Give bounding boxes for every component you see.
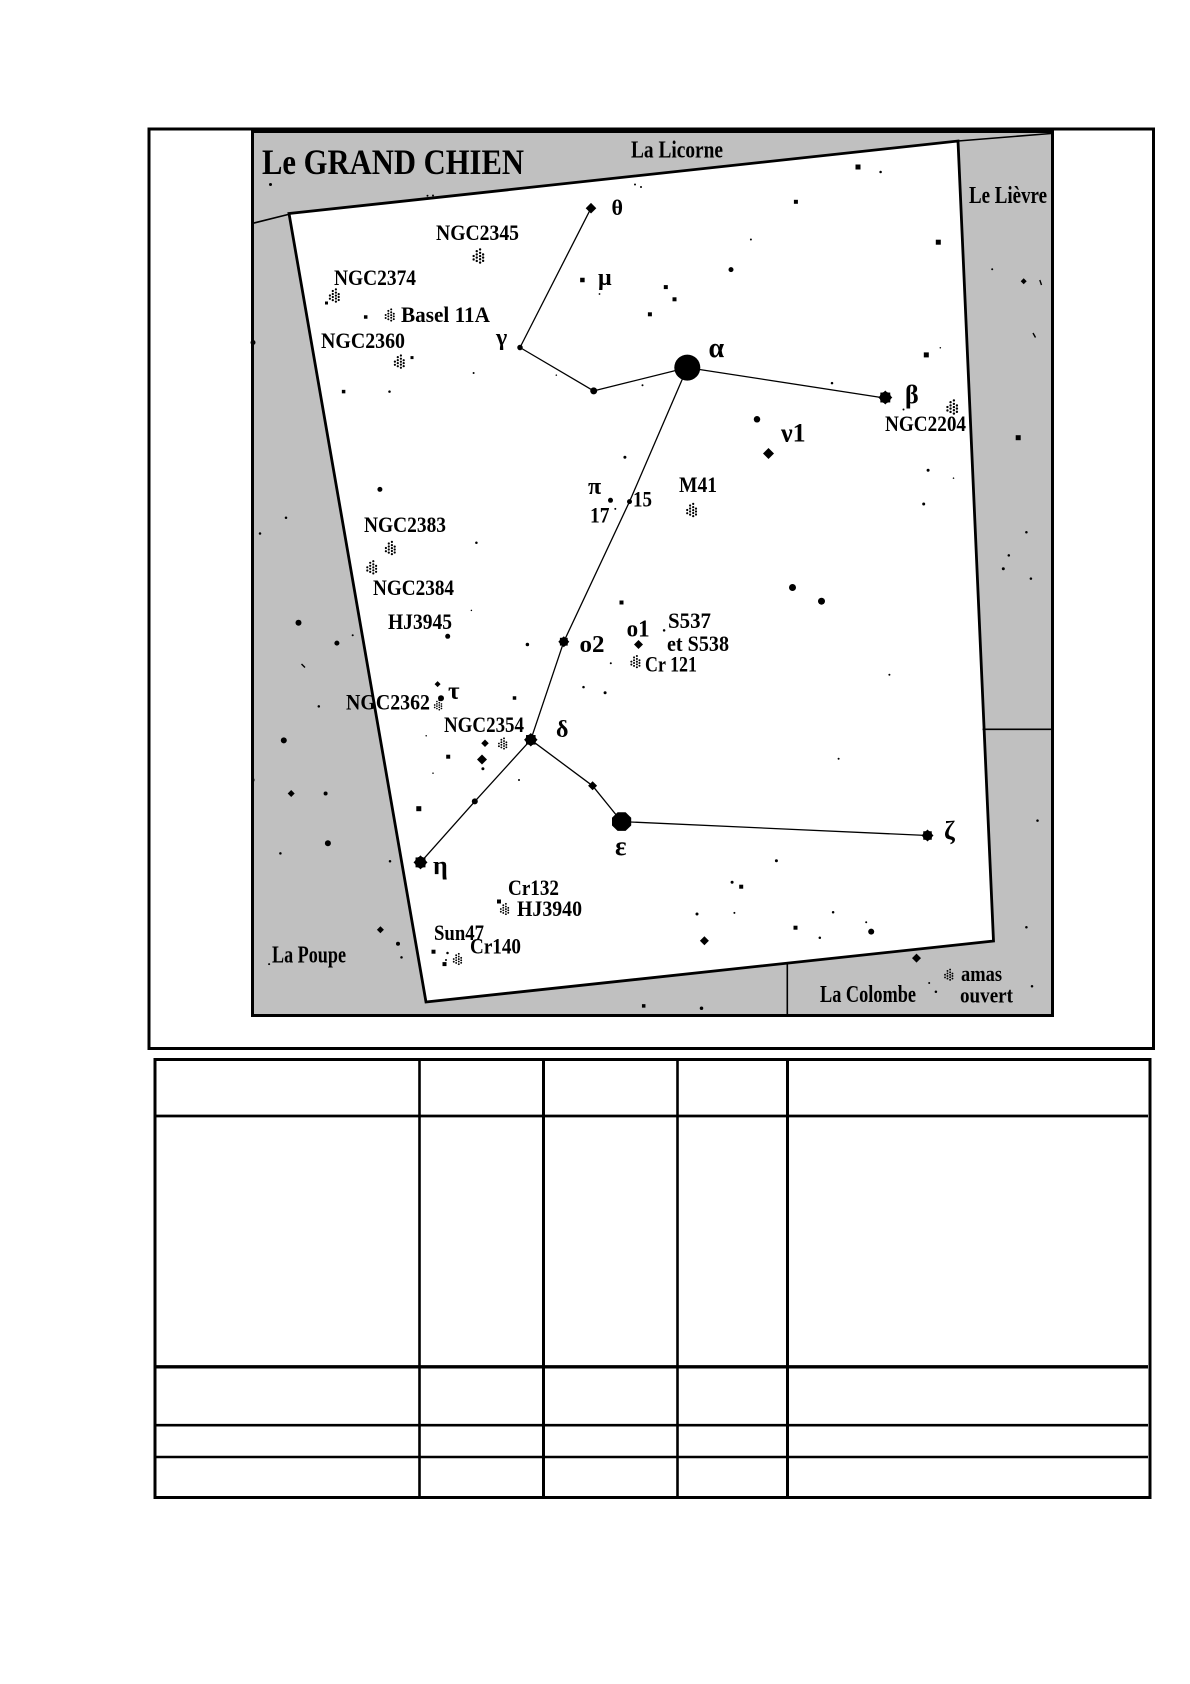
svg-text:La Poupe: La Poupe — [272, 943, 346, 969]
svg-text:τ: τ — [448, 678, 460, 705]
svg-text:ε: ε — [615, 831, 627, 861]
svg-text:Le Lièvre: Le Lièvre — [969, 183, 1047, 209]
svg-text:δ: δ — [556, 717, 568, 743]
svg-text:NGC2383: NGC2383 — [364, 512, 446, 537]
svg-text:o2: o2 — [580, 632, 605, 658]
svg-text:Cr140: Cr140 — [470, 934, 521, 959]
svg-text:π: π — [588, 474, 601, 500]
svg-text:La Colombe: La Colombe — [820, 982, 916, 1008]
svg-text:o1: o1 — [627, 617, 650, 643]
svg-text:NGC2204: NGC2204 — [885, 411, 966, 436]
svg-text:NGC2362: NGC2362 — [346, 690, 430, 715]
svg-text:17: 17 — [590, 503, 610, 528]
svg-text:γ: γ — [495, 325, 507, 351]
svg-text:M41: M41 — [679, 472, 717, 497]
svg-text:ζ: ζ — [944, 816, 955, 845]
svg-text:θ: θ — [612, 195, 623, 220]
svg-text:S537: S537 — [668, 608, 711, 633]
svg-text:Basel 11A: Basel 11A — [401, 302, 490, 327]
svg-text:μ: μ — [598, 265, 612, 291]
svg-text:HJ3945: HJ3945 — [388, 609, 452, 634]
svg-text:NGC2374: NGC2374 — [334, 265, 416, 290]
svg-text:NGC2345: NGC2345 — [436, 220, 519, 245]
svg-text:HJ3940: HJ3940 — [517, 896, 582, 921]
svg-text:η: η — [433, 851, 448, 880]
svg-text:NGC2354: NGC2354 — [444, 712, 524, 737]
svg-text:ouvert: ouvert — [960, 983, 1014, 1008]
svg-text:NGC2384: NGC2384 — [373, 575, 454, 600]
svg-text:15: 15 — [633, 487, 652, 512]
svg-text:α: α — [709, 333, 725, 364]
svg-text:NGC2360: NGC2360 — [321, 328, 405, 353]
svg-text:La Licorne: La Licorne — [631, 138, 723, 164]
svg-text:ν1: ν1 — [780, 419, 806, 448]
svg-text:Le GRAND CHIEN: Le GRAND CHIEN — [262, 142, 524, 182]
svg-text:β: β — [905, 380, 919, 409]
svg-text:Cr 121: Cr 121 — [645, 652, 697, 677]
